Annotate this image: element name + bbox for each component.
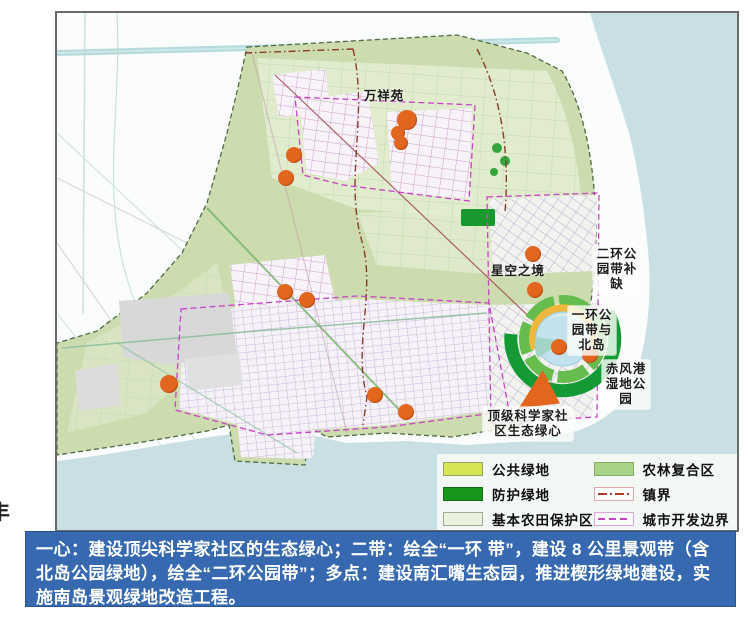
caption-text: 一心：建设顶尖科学家社区的生态绿心；二带：绘全“一环 带”，建设 8 公里景观带… — [36, 540, 711, 607]
legend-line-glyph — [598, 518, 630, 520]
legend-label: 防护绿地 — [492, 484, 550, 504]
legend-line-glyph — [598, 493, 630, 495]
map-label-wanxiangyuan: 万祥苑 — [357, 89, 411, 104]
map-label-shengtai-lvxin: 顶级科学家社区生态绿心 — [483, 407, 573, 441]
legend-item: 镇界 — [594, 484, 732, 504]
legend-color-swatch — [594, 462, 634, 476]
map-label-chifenggang-shidi: 赤风港湿地公园 — [602, 360, 650, 409]
legend-color-swatch — [443, 487, 483, 501]
map-label-layer: 万祥苑星空之境二环公园带补缺一环公园带与北岛赤风港湿地公园顶级科学家社区生态绿心 — [57, 13, 737, 530]
map-label-erhuan-gongyuandai-buque: 二环公园带补缺 — [593, 245, 641, 294]
clipped-edge-text: 丰 — [0, 496, 10, 525]
legend-label: 基本农田保护区 — [492, 509, 594, 529]
legend-item: 防护绿地 — [443, 484, 594, 504]
legend-color-swatch — [443, 462, 483, 476]
legend-color-swatch — [443, 512, 483, 526]
legend-label: 公共绿地 — [492, 459, 550, 479]
legend-label: 城市开发边界 — [643, 509, 730, 529]
map-label-yihuan-gongyuandai-beidao: 一环公园带与北岛 — [568, 306, 616, 355]
legend: 公共绿地防护绿地基本农田保护区农林复合区镇界城市开发边界 — [437, 454, 737, 532]
caption-bar: 一心：建设顶尖科学家社区的生态绿心；二带：绘全“一环 带”，建设 8 公里景观带… — [25, 531, 736, 607]
legend-line-swatch — [594, 487, 634, 501]
planning-map: 万祥苑星空之境二环公园带补缺一环公园带与北岛赤风港湿地公园顶级科学家社区生态绿心… — [55, 11, 739, 532]
legend-item: 基本农田保护区 — [443, 509, 594, 529]
legend-label: 农林复合区 — [643, 459, 716, 479]
legend-line-swatch — [594, 512, 634, 526]
legend-item: 公共绿地 — [443, 459, 594, 479]
legend-label: 镇界 — [643, 484, 672, 504]
legend-item: 农林复合区 — [594, 459, 732, 479]
legend-item: 城市开发边界 — [594, 509, 732, 529]
map-label-xingkongzhijing: 星空之境 — [491, 264, 545, 279]
